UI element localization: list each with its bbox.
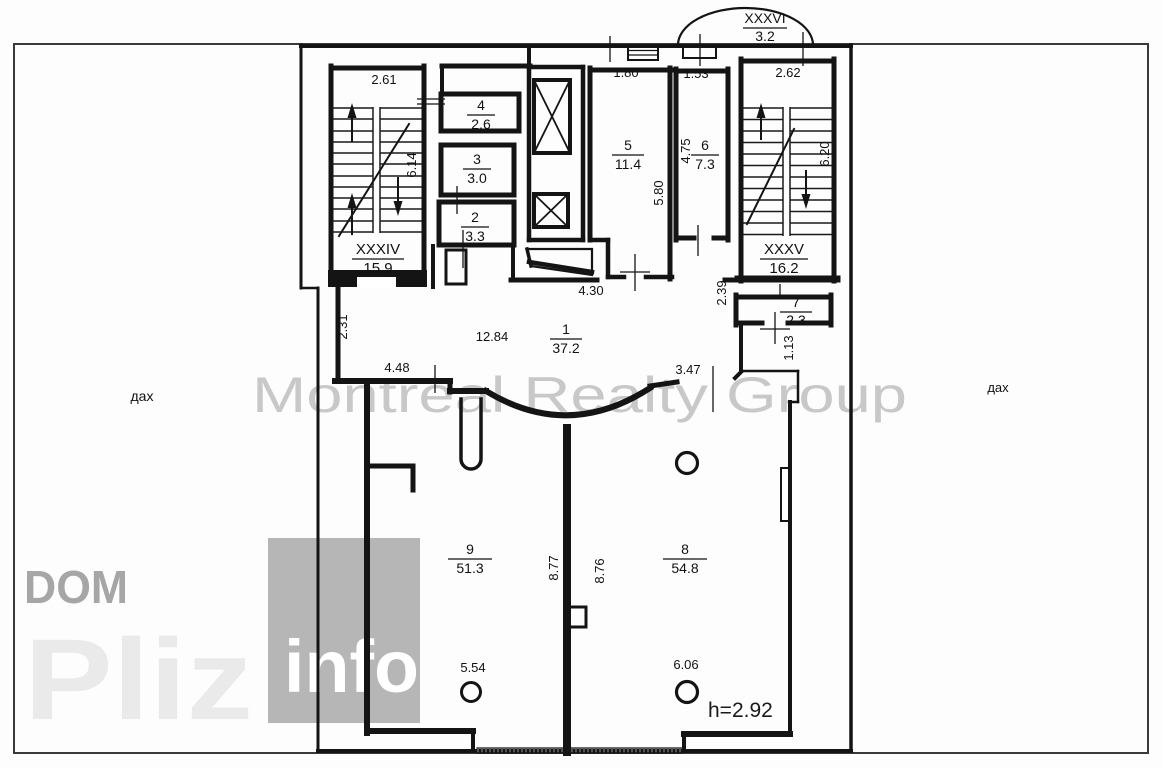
under-stair-closet bbox=[527, 249, 592, 275]
room-6-number: 6 bbox=[701, 137, 709, 153]
dim-hall-bottom-left: 4.48 bbox=[384, 360, 409, 375]
dim-hall-left: 2.31 bbox=[335, 314, 350, 339]
floorplan-page: DOM Pliz info Montreal Realty Group bbox=[0, 0, 1162, 768]
dim-room9-height: 8.77 bbox=[546, 555, 561, 580]
elevator-block bbox=[529, 46, 583, 240]
rooms-8-9-walls bbox=[367, 384, 791, 753]
dim-room8-height: 8.76 bbox=[592, 558, 607, 583]
column-room8-lower bbox=[677, 682, 698, 703]
room-1-area: 37.2 bbox=[552, 340, 579, 356]
stairwell-left-name: XXXIV bbox=[356, 241, 400, 258]
room-2-number: 2 bbox=[471, 209, 479, 225]
dim-stair-left-width: 2.61 bbox=[371, 72, 396, 87]
stairwell-right-area: 16.2 bbox=[769, 260, 798, 277]
room-5-area: 11.4 bbox=[615, 156, 641, 172]
dim-room9-column: 5.54 bbox=[460, 660, 485, 675]
column-room9 bbox=[462, 683, 481, 702]
balcony-area: 3.2 bbox=[755, 28, 775, 44]
ceiling-height-note: h=2.92 bbox=[708, 699, 773, 722]
room-3-number: 3 bbox=[473, 151, 481, 167]
dim-room6-width: 1.53 bbox=[683, 66, 708, 81]
room-3-area: 3.0 bbox=[467, 170, 487, 186]
dim-hall-bottom-right: 3.47 bbox=[675, 362, 700, 377]
watermark-pliz: Pliz bbox=[24, 616, 253, 744]
stair-stringer bbox=[783, 106, 790, 237]
dim-stair-right-width: 2.62 bbox=[775, 65, 800, 80]
balcony-name: XXXVI bbox=[744, 10, 785, 26]
room-8-area: 54.8 bbox=[671, 560, 698, 576]
stair-stringer bbox=[373, 106, 380, 234]
dim-stair-left-height: 6.14 bbox=[404, 152, 419, 177]
room-4-area: 2.6 bbox=[471, 116, 491, 132]
watermark-dom: DOM bbox=[24, 561, 128, 613]
room-5-walls bbox=[590, 68, 672, 279]
room-5-number: 5 bbox=[624, 137, 632, 153]
dim-niche-height: 1.13 bbox=[781, 335, 796, 360]
dim-stair-right-height: 6.20 bbox=[817, 141, 832, 166]
room-9-number: 9 bbox=[466, 541, 474, 557]
dim-room5-width: 1.80 bbox=[613, 65, 638, 80]
dim-passage-right: 2.39 bbox=[714, 280, 729, 305]
dim-hall-top: 4.30 bbox=[578, 283, 603, 298]
stairwell-left-area: 15.9 bbox=[363, 260, 392, 277]
dim-hall-width: 12.84 bbox=[476, 329, 509, 344]
stairwell-right-name: XXXV bbox=[764, 241, 804, 258]
room-7-number: 7 bbox=[792, 294, 800, 310]
vent-shaft bbox=[628, 46, 658, 60]
dim-room5-height: 5.80 bbox=[651, 180, 666, 205]
room-8-number: 8 bbox=[681, 541, 689, 557]
roof-label-left: дах bbox=[131, 388, 154, 404]
floor-plan-drawing: DOM Pliz info Montreal Realty Group bbox=[0, 0, 1162, 768]
room-4-number: 4 bbox=[477, 97, 485, 113]
room-2-area: 3.3 bbox=[465, 228, 485, 244]
column-room8-upper bbox=[677, 453, 698, 474]
roof-label-right: дах bbox=[987, 380, 1009, 395]
room-9-area: 51.3 bbox=[456, 560, 483, 576]
room-6-area: 7.3 bbox=[695, 156, 715, 172]
watermark-info: info bbox=[284, 625, 419, 708]
room-1-number: 1 bbox=[562, 321, 570, 337]
stair-door-notch bbox=[357, 277, 396, 287]
room-6-walls bbox=[676, 69, 741, 280]
room-7-area: 2.3 bbox=[786, 312, 806, 328]
dim-room8-column: 6.06 bbox=[673, 657, 698, 672]
dim-room6-height: 4.75 bbox=[678, 138, 693, 163]
